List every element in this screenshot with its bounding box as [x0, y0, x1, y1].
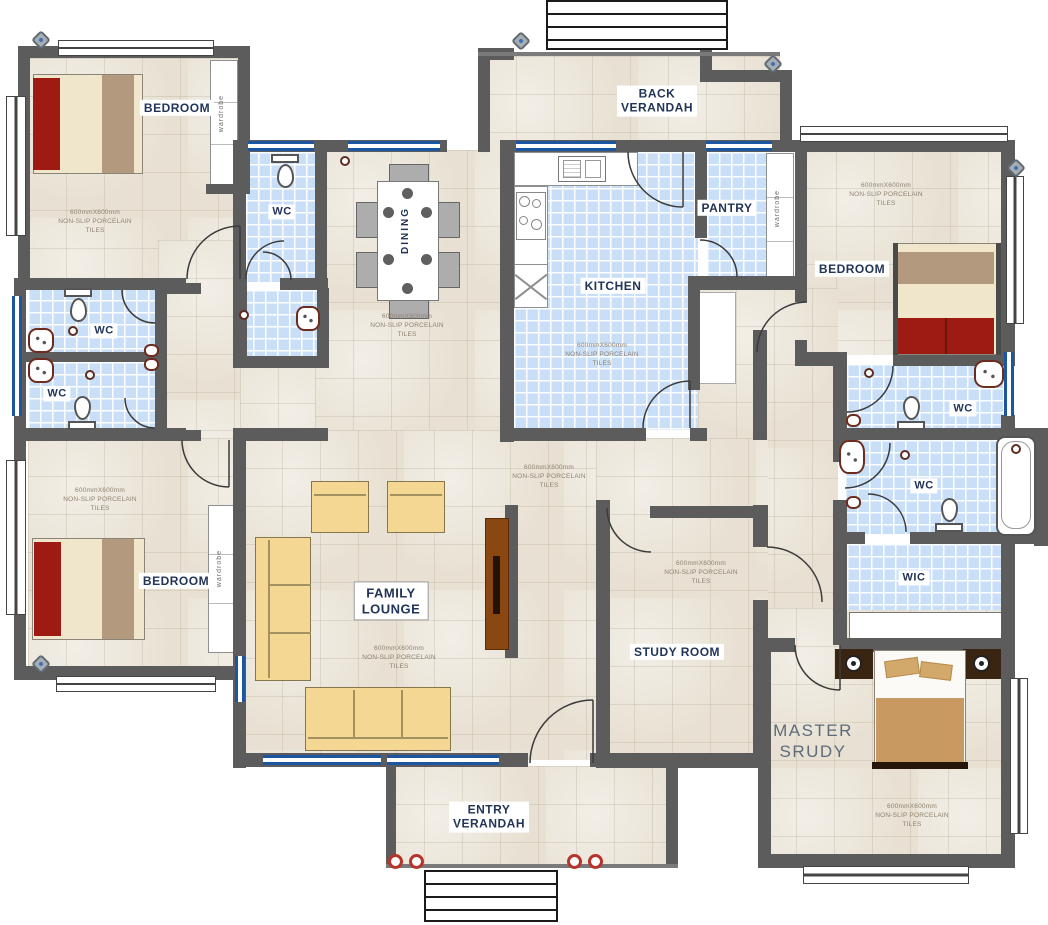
window-frame — [800, 126, 1008, 142]
master-study-line1: MASTER — [773, 720, 853, 741]
room-label-bedroom-bottom-left: BEDROOM — [139, 573, 213, 589]
room-label-kitchen: KITCHEN — [581, 278, 646, 294]
bed-headboard — [33, 78, 60, 170]
wall — [246, 428, 328, 441]
sink — [296, 306, 320, 331]
wall — [500, 753, 528, 767]
wall — [688, 290, 700, 390]
kitchen-fixture-box — [514, 264, 548, 308]
sofa-back-line — [308, 737, 448, 739]
verandah-column — [588, 854, 603, 869]
tile-note-bedroom-top-right: 600mmX600mm NON-SLIP PORCELAIN TILES — [831, 182, 941, 208]
floor-entry-verandah — [386, 766, 678, 868]
bed-blanket — [102, 539, 134, 639]
plate — [421, 254, 432, 265]
armchair-back-line — [314, 494, 366, 496]
tile-note-line: TILES — [40, 226, 150, 235]
tile-note-line: 600mmX600mm — [646, 560, 756, 569]
faucet — [340, 156, 350, 166]
dining-chair — [438, 252, 460, 288]
back-verandah-line1: BACK — [621, 87, 693, 101]
faucet — [68, 326, 78, 336]
tile-note-line: NON-SLIP PORCELAIN — [857, 812, 967, 821]
tile-note-line: TILES — [831, 199, 941, 208]
sofa-cushion-line — [401, 690, 403, 737]
stove-burner — [531, 219, 542, 230]
entry-verandah-line2: VERANDAH — [453, 817, 525, 831]
wall — [695, 152, 707, 238]
tile-note-line: 600mmX600mm — [352, 313, 462, 322]
tile-note-study-room: 600mmX600mm NON-SLIP PORCELAIN TILES — [646, 560, 756, 586]
family-lounge-line1: FAMILY — [362, 585, 421, 601]
room-label-wic: WIC — [899, 570, 930, 585]
wall — [315, 140, 327, 290]
verandah-edge — [386, 864, 678, 868]
plate — [402, 283, 413, 294]
toilet-tank — [68, 421, 96, 430]
tile-note-line: NON-SLIP PORCELAIN — [344, 654, 454, 663]
window — [706, 141, 772, 151]
family-lounge-line2: LOUNGE — [362, 601, 421, 617]
toilet-bowl — [70, 298, 87, 322]
bed-foot-split — [945, 318, 947, 354]
room-label-pantry: PANTRY — [698, 200, 757, 216]
lamp — [973, 655, 990, 672]
wall-fixture — [846, 496, 861, 509]
tile-note-hall: 600mmX600mm NON-SLIP PORCELAIN TILES — [494, 464, 604, 490]
window-frame — [1006, 176, 1024, 324]
floor-corridor-mid — [240, 365, 320, 431]
tile-note-line: TILES — [45, 504, 155, 513]
tile-note-line: 600mmX600mm — [40, 209, 150, 218]
corner-ornament-icon — [511, 31, 531, 51]
tile-note-kitchen: 600mmX600mm NON-SLIP PORCELAIN TILES — [547, 342, 657, 368]
tile-note-line: NON-SLIP PORCELAIN — [352, 322, 462, 331]
tile-note-line: 600mmX600mm — [547, 342, 657, 351]
wall — [167, 283, 201, 294]
wall — [1001, 536, 1015, 648]
kitchen-sink-bowl-left — [563, 160, 581, 178]
room-label-study-room: STUDY ROOM — [630, 644, 724, 660]
tile-note-line: NON-SLIP PORCELAIN — [547, 351, 657, 360]
armchair-back-line — [390, 494, 442, 496]
bed-headboard — [34, 542, 61, 636]
wall — [833, 500, 847, 645]
dining-chair — [356, 252, 378, 288]
wall — [500, 428, 646, 441]
wall — [238, 356, 328, 368]
window — [235, 656, 245, 702]
sofa-left — [255, 537, 311, 681]
lamp — [845, 655, 862, 672]
stove-burner — [532, 199, 541, 208]
tile-note-line: TILES — [352, 330, 462, 339]
window-frame — [6, 96, 26, 236]
tile-note-line: NON-SLIP PORCELAIN — [831, 191, 941, 200]
wic-shelf — [849, 612, 1003, 640]
tile-note-bedroom-top-left: 600mmX600mm NON-SLIP PORCELAIN TILES — [40, 209, 150, 235]
wall-fixture — [144, 344, 159, 357]
window — [248, 141, 314, 151]
wall — [690, 428, 707, 441]
tile-note-line: NON-SLIP PORCELAIN — [45, 496, 155, 505]
tile-note-line: 600mmX600mm — [494, 464, 604, 473]
room-label-master-study: MASTER SRUDY — [773, 720, 853, 763]
wall — [233, 140, 246, 286]
wall — [596, 500, 610, 755]
room-label-family-lounge: FAMILY LOUNGE — [354, 581, 429, 620]
wall — [500, 140, 514, 442]
window — [1004, 352, 1014, 416]
wall — [596, 753, 768, 768]
entry-steps — [424, 870, 558, 922]
faucet — [864, 368, 874, 378]
toilet-tank — [897, 421, 925, 430]
tile-note-line: 600mmX600mm — [831, 182, 941, 191]
floor-study-room — [596, 438, 768, 760]
wall — [666, 766, 678, 868]
wall — [688, 276, 800, 290]
sofa-cushion-line — [268, 632, 311, 634]
tile-note-family-lounge: 600mmX600mm NON-SLIP PORCELAIN TILES — [344, 645, 454, 671]
wall — [233, 278, 247, 368]
wall — [780, 82, 792, 152]
tile-note-line: TILES — [547, 359, 657, 368]
faucet — [900, 450, 910, 460]
sink — [839, 440, 865, 474]
armchair — [387, 481, 445, 533]
bed-blanket — [876, 698, 964, 762]
sofa-cushion-line — [268, 584, 311, 586]
tile-note-bedroom-bottom-left: 600mmX600mm NON-SLIP PORCELAIN TILES — [45, 487, 155, 513]
plate — [383, 254, 394, 265]
tile-note-line: 600mmX600mm — [857, 803, 967, 812]
faucet — [1011, 444, 1021, 454]
bathtub-inner — [1001, 441, 1031, 529]
verandah-column — [388, 854, 403, 869]
tile-note-line: 600mmX600mm — [45, 487, 155, 496]
window-frame — [6, 460, 26, 615]
bed-blanket — [102, 75, 134, 173]
plate — [421, 207, 432, 218]
wall-fixture — [846, 414, 861, 427]
toilet-bowl — [277, 164, 294, 188]
wall — [1034, 428, 1048, 546]
sink — [28, 328, 54, 353]
tile-note-line: NON-SLIP PORCELAIN — [40, 218, 150, 227]
back-verandah-line2: VERANDAH — [621, 101, 693, 115]
room-label-bedroom-top-right: BEDROOM — [815, 261, 889, 277]
room-label-wc-left-upper: WC — [90, 323, 117, 338]
sofa-main — [305, 687, 451, 751]
armchair — [311, 481, 369, 533]
kitchen-sink-bowl-right — [585, 160, 601, 178]
window — [12, 296, 22, 416]
bed-blanket — [898, 252, 994, 284]
tile-note-line: NON-SLIP PORCELAIN — [494, 473, 604, 482]
wall-fixture — [144, 358, 159, 371]
room-label-entry-verandah: ENTRY VERANDAH — [449, 802, 529, 833]
dining-chair — [356, 202, 378, 238]
wardrobe-label-top-left: wardrobe — [218, 95, 225, 132]
plate — [402, 188, 413, 199]
entry-verandah-line1: ENTRY — [453, 803, 525, 817]
stove-burner — [519, 216, 528, 225]
stove-burner — [519, 196, 530, 207]
room-label-wc-mid: WC — [268, 204, 295, 219]
wall — [753, 330, 767, 440]
tv-screen — [493, 556, 500, 614]
window-frame — [58, 40, 214, 56]
back-steps — [546, 0, 728, 50]
wall — [14, 428, 186, 441]
tile-note-master-study: 600mmX600mm NON-SLIP PORCELAIN TILES — [857, 803, 967, 829]
tile-note-line: 600mmX600mm — [344, 645, 454, 654]
window — [263, 755, 381, 765]
wall — [155, 283, 167, 433]
toilet-tank — [64, 288, 92, 297]
toilet-tank — [935, 523, 963, 532]
wall — [233, 428, 246, 768]
wall — [386, 766, 396, 868]
sofa-back-line — [268, 540, 270, 678]
verandah-column — [409, 854, 424, 869]
verandah-column — [567, 854, 582, 869]
window — [348, 141, 440, 151]
tile-note-line: TILES — [344, 662, 454, 671]
master-study-line2: SRUDY — [773, 741, 853, 762]
toilet-tank — [271, 154, 299, 163]
floor-plan: DINING — [0, 0, 1048, 925]
window-frame — [56, 676, 216, 692]
faucet — [85, 370, 95, 380]
wall — [700, 70, 792, 82]
room-label-back-verandah: BACK VERANDAH — [617, 86, 697, 117]
wall — [758, 652, 771, 868]
bed-rail — [996, 243, 1001, 355]
window — [387, 755, 499, 765]
window-frame — [1010, 678, 1028, 834]
wall — [795, 152, 807, 302]
tile-note-line: NON-SLIP PORCELAIN — [646, 569, 756, 578]
bed-footboard — [872, 762, 968, 769]
room-label-wc-right-upper: WC — [949, 401, 976, 416]
tile-note-dining: 600mmX600mm NON-SLIP PORCELAIN TILES — [352, 313, 462, 339]
wardrobe-label-bottom-left: wardrobe — [216, 550, 223, 587]
wall — [650, 506, 768, 518]
tile-note-line: TILES — [857, 820, 967, 829]
faucet — [239, 310, 249, 320]
tile-note-line: TILES — [646, 577, 756, 586]
wall — [833, 532, 865, 544]
plate — [383, 207, 394, 218]
window-frame — [803, 866, 969, 884]
room-label-dining: DINING — [399, 203, 412, 258]
room-label-bedroom-top-left: BEDROOM — [140, 100, 214, 116]
wall — [478, 48, 490, 152]
sink — [28, 358, 54, 383]
sofa-cushion-line — [353, 690, 355, 737]
wardrobe-label-top-right: wardrobe — [774, 190, 781, 227]
window — [516, 141, 616, 151]
sink — [974, 360, 1004, 388]
tile-note-line: TILES — [494, 481, 604, 490]
verandah-edge — [478, 52, 780, 56]
dining-chair — [438, 202, 460, 238]
room-label-wc-left-lower: WC — [43, 386, 70, 401]
room-label-wc-right-lower: WC — [910, 478, 937, 493]
